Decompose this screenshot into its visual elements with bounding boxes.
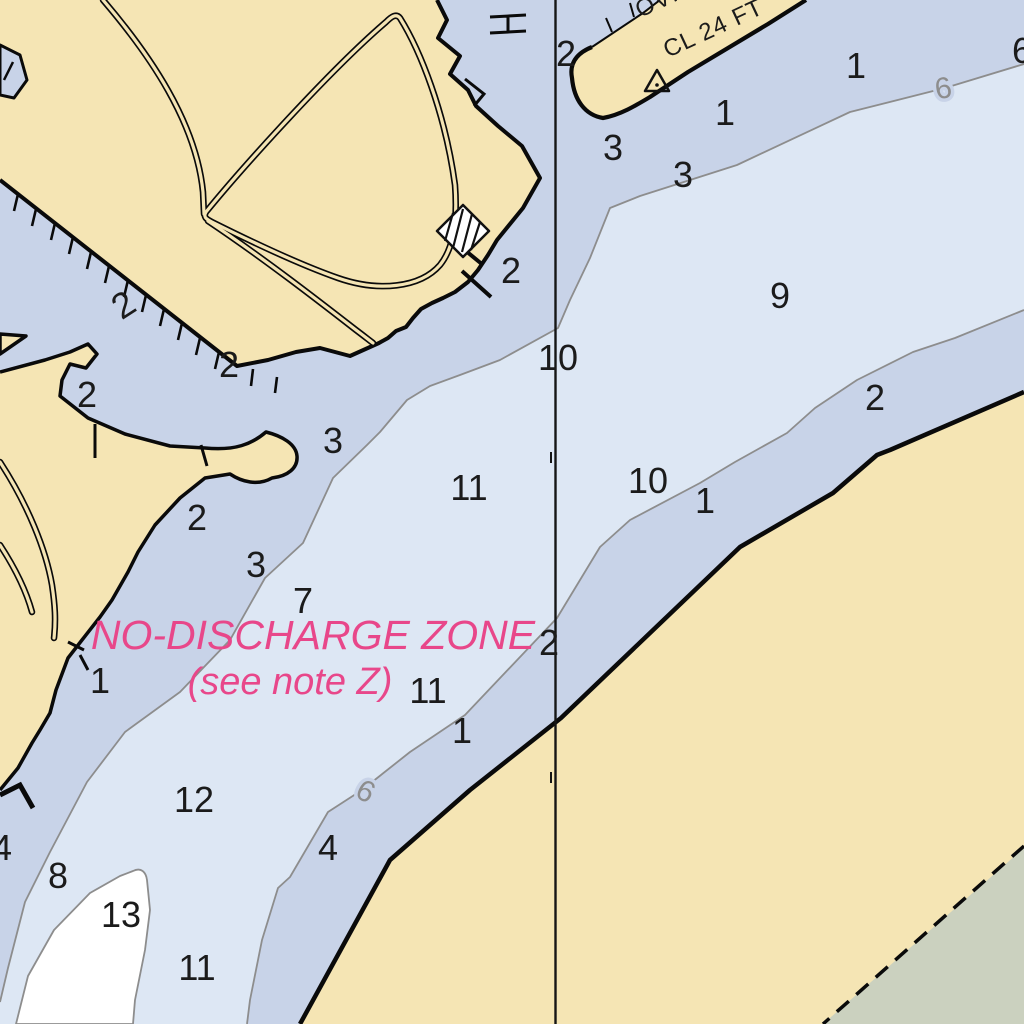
- nautical-chart: 2331169210101222311223712111124813114 66…: [0, 0, 1024, 1024]
- no-discharge-zone-note: (see note Z): [188, 661, 393, 703]
- depth-sounding: 2: [501, 250, 521, 291]
- depth-sounding: 9: [770, 275, 790, 316]
- depth-sounding: 8: [48, 855, 68, 896]
- depth-sounding: 2: [539, 622, 559, 663]
- depth-sounding: 4: [318, 827, 338, 868]
- depth-sounding: 3: [246, 544, 266, 585]
- depth-sounding: 1: [452, 710, 472, 751]
- depth-sounding: 4: [0, 827, 12, 868]
- depth-sounding: 3: [673, 154, 693, 195]
- depth-sounding: 1: [846, 45, 866, 86]
- no-discharge-zone-label: NO-DISCHARGE ZONE: [91, 612, 536, 658]
- depth-sounding: 10: [538, 337, 578, 378]
- depth-sounding: 11: [450, 467, 487, 508]
- triangle-beacon-dot: [655, 83, 659, 87]
- depth-sounding: 10: [628, 460, 668, 501]
- depth-sounding: 1: [695, 480, 715, 521]
- depth-sounding: 3: [603, 127, 623, 168]
- depth-sounding: 1: [715, 92, 735, 133]
- depth-sounding: 11: [178, 947, 215, 988]
- depth-sounding: 3: [323, 420, 343, 461]
- depth-sounding: 13: [101, 894, 141, 935]
- depth-sounding: 6: [1012, 30, 1024, 71]
- depth-sounding: 2: [219, 344, 239, 385]
- depth-sounding: 2: [187, 497, 207, 538]
- depth-sounding: 1: [90, 660, 110, 701]
- depth-sounding: 11: [409, 670, 446, 711]
- chart-canvas: 2331169210101222311223712111124813114 66…: [0, 0, 1024, 1024]
- depth-sounding: 2: [77, 374, 97, 415]
- depth-sounding: 12: [174, 779, 214, 820]
- depth-sounding: 2: [556, 33, 576, 74]
- depth-sounding: 2: [865, 377, 885, 418]
